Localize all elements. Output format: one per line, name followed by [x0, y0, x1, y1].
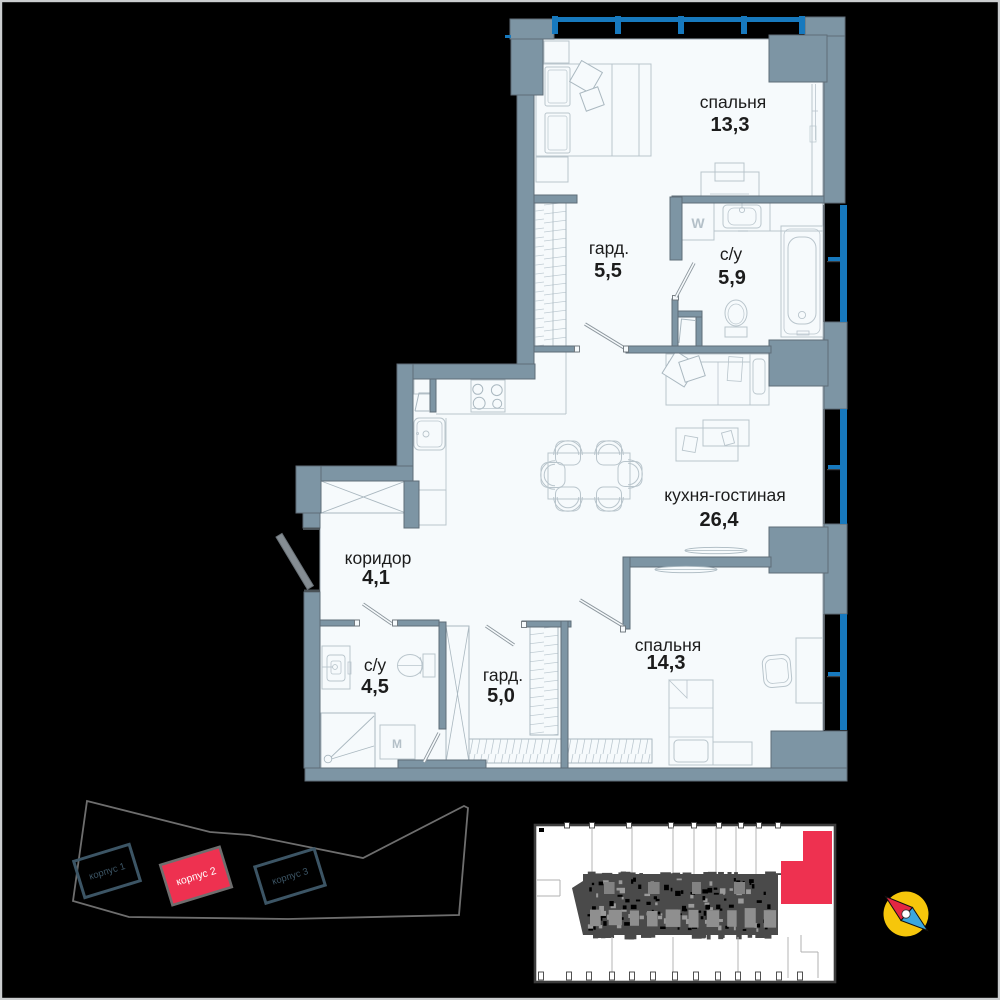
- svg-text:4,5: 4,5: [361, 676, 389, 698]
- svg-text:14,3: 14,3: [647, 652, 686, 674]
- svg-text:5,9: 5,9: [718, 267, 746, 289]
- svg-text:M: M: [392, 737, 402, 751]
- svg-text:спальня: спальня: [700, 92, 766, 112]
- svg-text:W: W: [691, 215, 705, 231]
- svg-text:26,4: 26,4: [700, 509, 740, 531]
- svg-text:гард.: гард.: [483, 665, 523, 685]
- svg-text:кухня-гостиная: кухня-гостиная: [664, 485, 785, 505]
- svg-text:4,1: 4,1: [362, 567, 390, 589]
- svg-text:13,3: 13,3: [711, 114, 750, 136]
- svg-text:5,0: 5,0: [487, 685, 515, 707]
- svg-text:с/у: с/у: [720, 244, 743, 264]
- svg-text:5,5: 5,5: [594, 260, 622, 282]
- svg-text:коридор: коридор: [345, 548, 412, 568]
- svg-text:с/у: с/у: [364, 655, 387, 675]
- svg-text:гард.: гард.: [589, 238, 629, 258]
